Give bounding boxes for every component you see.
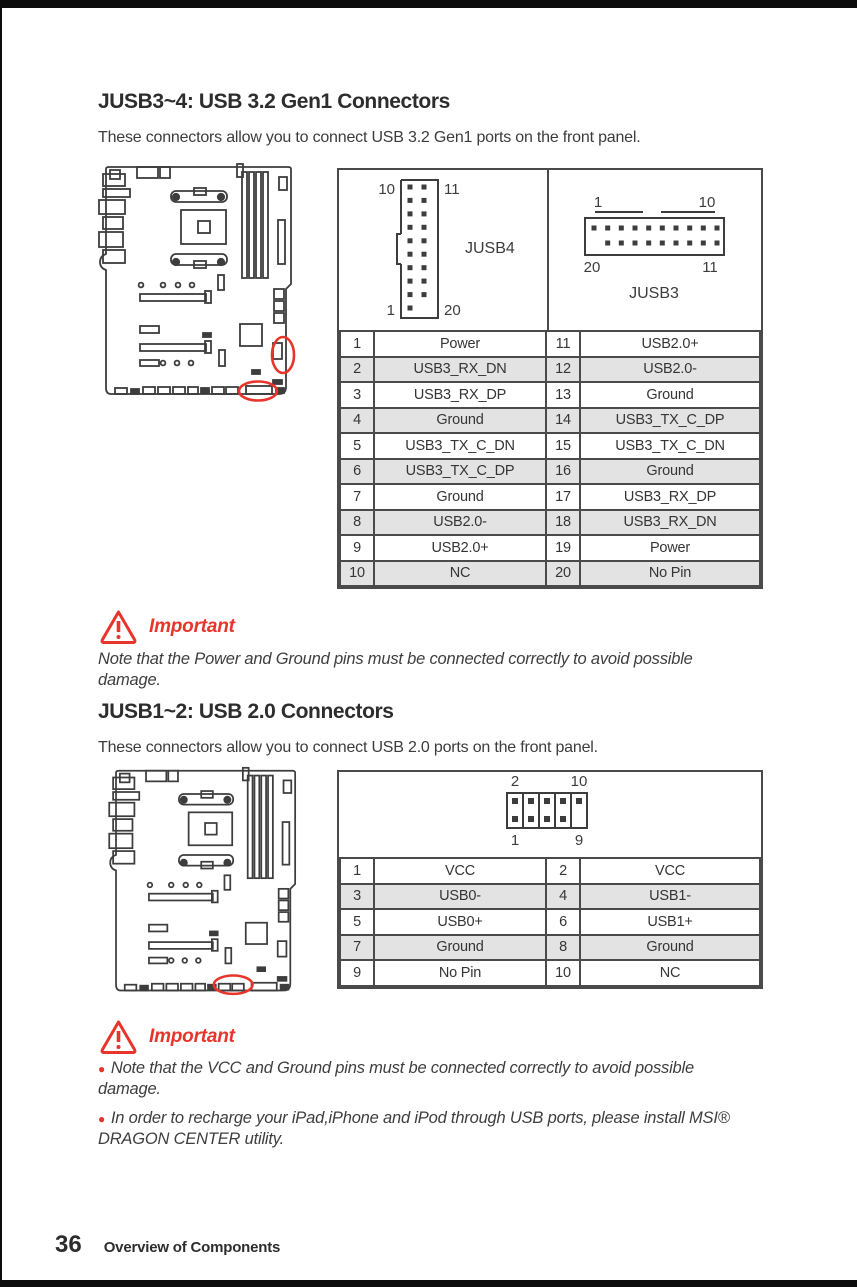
important-header-1: Important: [100, 609, 235, 644]
pin-signal-cell: USB3_RX_DP: [374, 382, 546, 408]
pin-table-row: 1VCC2VCC: [340, 858, 760, 884]
pin-table-row: 8USB2.0-18USB3_RX_DN: [340, 510, 760, 536]
section-description-usb20: These connectors allow you to connect US…: [98, 739, 598, 757]
pin-number-cell: 5: [340, 433, 374, 459]
pin-number-cell: 3: [340, 884, 374, 910]
pin-signal-cell: USB3_TX_C_DP: [580, 408, 760, 434]
jusb3-label: JUSB3: [629, 285, 679, 302]
usb20-pin-label-1: 1: [511, 832, 519, 849]
pin-number-cell: 18: [546, 510, 580, 536]
pin-signal-cell: USB2.0+: [374, 535, 546, 561]
pin-number-cell: 4: [340, 408, 374, 434]
pin-table-row: 7Ground8Ground: [340, 935, 760, 961]
motherboard-diagram-usb20: [105, 762, 311, 1006]
pin-number-cell: 7: [340, 484, 374, 510]
pin-number-cell: 12: [546, 357, 580, 383]
pin-signal-cell: VCC: [580, 858, 760, 884]
scan-edge-top: [0, 0, 857, 8]
pin-number-cell: 6: [546, 909, 580, 935]
pin-table-row: 4Ground14USB3_TX_C_DP: [340, 408, 760, 434]
jusb4-diagram-cell: 10 11 1 20 JUSB4: [339, 170, 549, 330]
warning-icon: [100, 609, 137, 644]
pin-signal-cell: USB3_RX_DN: [374, 357, 546, 383]
page-footer: 36 Overview of Components: [55, 1231, 280, 1259]
pin-number-cell: 7: [340, 935, 374, 961]
pin-signal-cell: USB3_RX_DN: [580, 510, 760, 536]
section-title-usb20: JUSB1~2: USB 2.0 Connectors: [98, 700, 394, 724]
pin-signal-cell: Ground: [580, 382, 760, 408]
pin-signal-cell: Ground: [374, 484, 546, 510]
usb20-diagram-row: 2 10 1 9: [339, 772, 761, 857]
pin-signal-cell: USB3_TX_C_DN: [374, 433, 546, 459]
pin-signal-cell: USB3_RX_DP: [580, 484, 760, 510]
highlight-ellipse-usb32-side: [272, 337, 294, 373]
pin-number-cell: 1: [340, 858, 374, 884]
section-title-usb32: JUSB3~4: USB 3.2 Gen1 Connectors: [98, 90, 450, 114]
pin-number-cell: 2: [340, 357, 374, 383]
motherboard-diagram-usb32: [95, 158, 307, 410]
pin-table-row: 10NC20No Pin: [340, 561, 760, 587]
pin-number-cell: 6: [340, 459, 374, 485]
pin-number-cell: 4: [546, 884, 580, 910]
usb32-pin-table: 1Power11USB2.0+2USB3_RX_DN12USB2.0-3USB3…: [339, 330, 761, 587]
pin-number-cell: 8: [546, 935, 580, 961]
pin-table-row: 9USB2.0+19Power: [340, 535, 760, 561]
jusb3-connector-drawing: 1 10 20 11 JUSB3: [549, 170, 761, 328]
important-note-bullet: Note that the VCC and Ground pins must b…: [98, 1058, 753, 1100]
pin-table-row: 2USB3_RX_DN12USB2.0-: [340, 357, 760, 383]
pin-number-cell: 13: [546, 382, 580, 408]
pin-number-cell: 19: [546, 535, 580, 561]
pin-table-row: 3USB0-4USB1-: [340, 884, 760, 910]
pin-signal-cell: USB2.0-: [580, 357, 760, 383]
jusb4-connector-drawing: 10 11 1 20 JUSB4: [339, 170, 547, 328]
pin-signal-cell: USB0-: [374, 884, 546, 910]
section-description-usb32: These connectors allow you to connect US…: [98, 129, 640, 147]
pin-table-row: 9No Pin10NC: [340, 960, 760, 986]
pin-signal-cell: Ground: [580, 935, 760, 961]
scan-edge-bottom: [0, 1280, 857, 1287]
jusb4-pin-label-11: 11: [444, 181, 460, 198]
usb20-pin-table: 1VCC2VCC3USB0-4USB1-5USB0+6USB1+7Ground8…: [339, 857, 761, 987]
jusb4-pin-label-20: 20: [444, 302, 461, 319]
important-label: Important: [149, 1026, 235, 1048]
pin-number-cell: 9: [340, 960, 374, 986]
pin-number-cell: 14: [546, 408, 580, 434]
usb20-diagram-cell: 2 10 1 9: [339, 772, 761, 857]
usb20-connector-panel: 2 10 1 9 1VCC2VCC3USB0-4USB1-5USB0+6USB1…: [337, 770, 763, 989]
usb20-pin-label-10: 10: [571, 773, 588, 790]
pin-signal-cell: VCC: [374, 858, 546, 884]
pin-number-cell: 10: [340, 561, 374, 587]
scan-edge-left: [0, 0, 2, 1287]
pin-number-cell: 17: [546, 484, 580, 510]
usb32-connector-panel: 10 11 1 20 JUSB4: [337, 168, 763, 589]
pin-signal-cell: USB1-: [580, 884, 760, 910]
pin-signal-cell: NC: [374, 561, 546, 587]
pin-signal-cell: Ground: [374, 935, 546, 961]
jusb4-pin-label-1: 1: [387, 302, 395, 319]
pin-signal-cell: USB3_TX_C_DN: [580, 433, 760, 459]
jusb3-pin-label-1: 1: [594, 194, 602, 211]
manual-page: JUSB3~4: USB 3.2 Gen1 Connectors These c…: [0, 0, 857, 1287]
jusb4-pin-label-10: 10: [378, 181, 395, 198]
pin-table-row: 3USB3_RX_DP13Ground: [340, 382, 760, 408]
pin-signal-cell: Ground: [580, 459, 760, 485]
usb20-pin-label-2: 2: [511, 773, 519, 790]
important-note: Note that the Power and Ground pins must…: [98, 649, 753, 691]
warning-icon: [100, 1019, 137, 1054]
pin-number-cell: 8: [340, 510, 374, 536]
important-header-2: Important: [100, 1019, 235, 1054]
pin-number-cell: 9: [340, 535, 374, 561]
pin-number-cell: 10: [546, 960, 580, 986]
pin-number-cell: 16: [546, 459, 580, 485]
pin-number-cell: 3: [340, 382, 374, 408]
pin-signal-cell: USB2.0+: [580, 331, 760, 357]
pin-signal-cell: No Pin: [580, 561, 760, 587]
pin-signal-cell: Power: [580, 535, 760, 561]
pin-number-cell: 2: [546, 858, 580, 884]
pin-signal-cell: USB3_TX_C_DP: [374, 459, 546, 485]
jusb3-pin-label-10: 10: [699, 194, 716, 211]
usb20-connector-drawing: 2 10 1 9: [339, 772, 761, 855]
usb32-diagram-row: 10 11 1 20 JUSB4: [339, 170, 761, 330]
footer-chapter-title: Overview of Components: [104, 1239, 280, 1256]
jusb3-pin-label-20: 20: [584, 259, 601, 276]
pin-signal-cell: USB1+: [580, 909, 760, 935]
pin-signal-cell: NC: [580, 960, 760, 986]
pin-signal-cell: No Pin: [374, 960, 546, 986]
pin-signal-cell: Ground: [374, 408, 546, 434]
pin-table-row: 6USB3_TX_C_DP16Ground: [340, 459, 760, 485]
pin-signal-cell: USB2.0-: [374, 510, 546, 536]
jusb3-diagram-cell: 1 10 20 11 JUSB3: [549, 170, 761, 330]
jusb4-label: JUSB4: [465, 240, 515, 257]
pin-table-row: 5USB0+6USB1+: [340, 909, 760, 935]
page-number: 36: [55, 1231, 82, 1259]
pin-number-cell: 20: [546, 561, 580, 587]
pin-number-cell: 1: [340, 331, 374, 357]
important-label: Important: [149, 616, 235, 638]
jusb3-pin-label-11: 11: [702, 259, 718, 276]
pin-signal-cell: Power: [374, 331, 546, 357]
pin-number-cell: 5: [340, 909, 374, 935]
pin-signal-cell: USB0+: [374, 909, 546, 935]
pin-number-cell: 11: [546, 331, 580, 357]
pin-table-row: 7Ground17USB3_RX_DP: [340, 484, 760, 510]
pin-number-cell: 15: [546, 433, 580, 459]
important-note-bullet: In order to recharge your iPad,iPhone an…: [98, 1108, 753, 1150]
usb20-pin-label-9: 9: [575, 832, 583, 849]
pin-table-row: 5USB3_TX_C_DN15USB3_TX_C_DN: [340, 433, 760, 459]
pin-table-row: 1Power11USB2.0+: [340, 331, 760, 357]
